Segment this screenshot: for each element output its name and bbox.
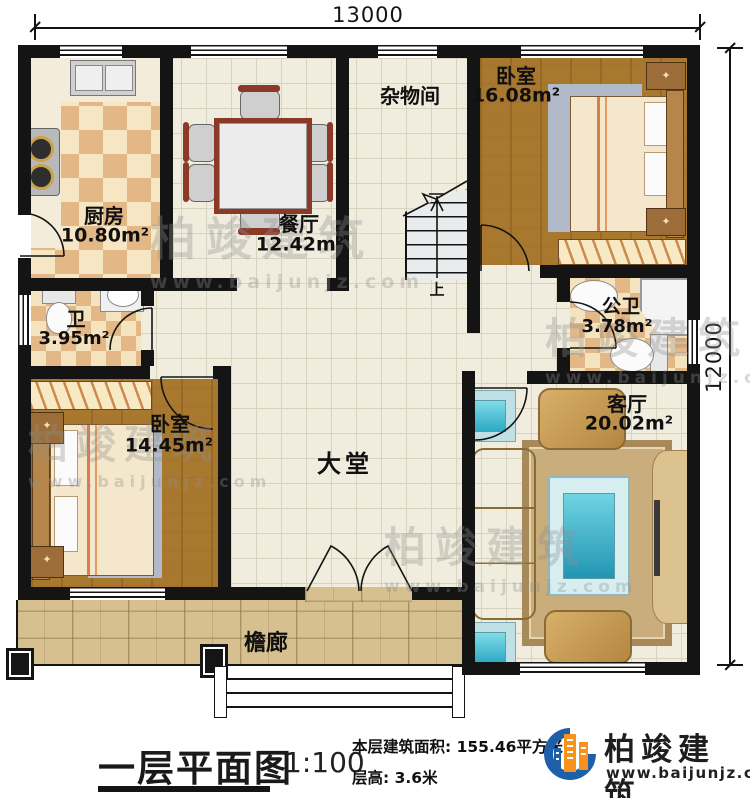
watermark-site: www.baijunjz.com [150, 271, 424, 293]
bedroom-top-area: 16.08m² [472, 87, 560, 106]
veranda-label: 檐廊 [244, 633, 288, 655]
burner [28, 164, 54, 190]
living-label: 客厅 [607, 394, 647, 414]
chair-back [238, 85, 280, 92]
plan-title: 一层平面图 [98, 738, 293, 792]
area-line: 本层建筑面积: 155.46平方米 [352, 735, 563, 757]
bedroom-top-label: 卧室 [496, 66, 536, 86]
side-table-glass [474, 400, 506, 432]
dining-table [214, 118, 312, 214]
dimension-line-top [35, 27, 700, 29]
bath-left-label: 卫 [66, 311, 85, 330]
wall [18, 58, 31, 215]
window [521, 45, 643, 58]
storage-label: 杂物间 [380, 86, 440, 106]
wall [557, 278, 570, 302]
wall [18, 366, 150, 379]
watermark: 柏竣建筑 www.baijunjz.com [384, 514, 638, 597]
wall [141, 291, 154, 306]
kitchen-label: 厨房 [84, 206, 124, 226]
wall [18, 587, 70, 600]
dining-area: 12.42m² [256, 236, 344, 255]
wall [231, 587, 305, 600]
chair-back [183, 122, 189, 162]
dining-chair [188, 164, 216, 202]
window [520, 662, 645, 675]
living-area: 20.02m² [585, 415, 673, 434]
floor-plan: ✦ ✦ ✦ ✦ 柏竣建筑 www.baijunj [0, 0, 750, 798]
window [191, 45, 287, 58]
nightstand: ✦ [30, 546, 64, 578]
brand-logo-icon [540, 722, 600, 784]
step-post [214, 666, 227, 718]
side-table-glass [474, 632, 506, 664]
area-label: 本层建筑面积: [352, 738, 451, 756]
wall [462, 662, 520, 675]
wardrobe [30, 381, 152, 410]
wall [462, 371, 475, 384]
window [378, 45, 437, 58]
chair-back [327, 162, 333, 202]
bedroom-left-area: 14.45m² [125, 437, 213, 456]
brand-company: 柏竣建筑 [604, 724, 750, 798]
window [70, 587, 165, 600]
burner [28, 136, 54, 162]
nightstand: ✦ [646, 62, 686, 90]
veranda-column [6, 648, 34, 680]
sink-basin [105, 65, 133, 91]
chair-back [183, 162, 189, 202]
floor-height-label: 层高: [352, 769, 389, 787]
hall-label: 大堂 [317, 452, 373, 476]
brand-website: www.baijunjz.com [606, 764, 750, 782]
tv [654, 500, 660, 576]
bath-left-area: 3.95m² [38, 330, 109, 348]
kitchen-area: 10.80m² [61, 227, 149, 246]
step-line [226, 706, 456, 708]
dining-chair [188, 124, 216, 162]
watermark-site: www.baijunjz.com [28, 472, 271, 491]
sink-basin [75, 65, 103, 91]
stair-up-label: 上 [429, 283, 444, 298]
step-line [226, 692, 456, 694]
public-bath-area: 3.78m² [581, 318, 652, 336]
dining-label: 餐厅 [279, 214, 319, 234]
wall [141, 350, 154, 366]
wall [540, 265, 700, 278]
watermark-text: 柏竣建筑 [384, 523, 588, 572]
wardrobe [558, 239, 686, 265]
floor-height-value: 3.6米 [395, 769, 438, 787]
window [18, 295, 31, 345]
chair-back [327, 122, 333, 162]
armchair [544, 610, 632, 664]
nightstand: ✦ [646, 208, 686, 236]
dimension-width: 13000 [326, 3, 410, 27]
veranda-edge-bottom [16, 664, 462, 666]
wall [645, 662, 687, 675]
bedroom-left-label: 卧室 [150, 414, 190, 434]
kitchen-sink [70, 60, 136, 96]
window [60, 45, 122, 58]
veranda-paving [16, 600, 462, 666]
step-line [226, 678, 456, 680]
floor-height-line: 层高: 3.6米 [352, 766, 438, 788]
dining-chair [240, 90, 280, 120]
pillow [54, 496, 78, 552]
title-underline [98, 786, 270, 792]
watermark-site: www.baijunjz.com [384, 577, 638, 597]
public-bath-label: 公卫 [602, 298, 640, 317]
watermark-site: www.baijunjz.com [545, 368, 750, 388]
